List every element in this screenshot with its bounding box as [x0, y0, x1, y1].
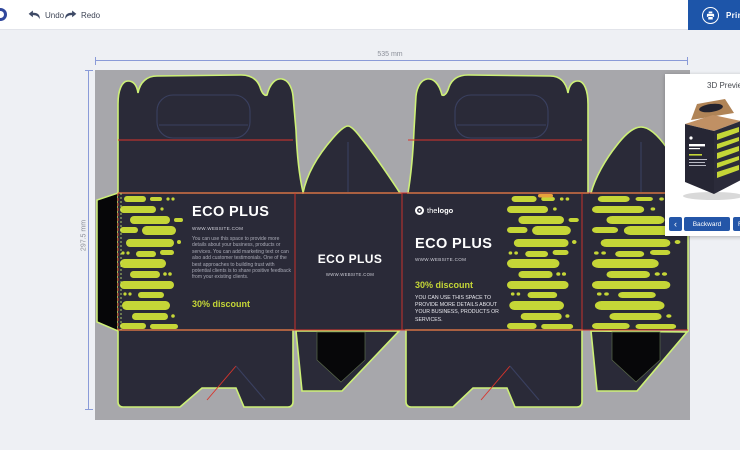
bottom-flap-front [118, 330, 293, 407]
back-icon[interactable] [0, 8, 7, 21]
undo-icon [28, 10, 41, 20]
height-dimension-line [88, 70, 89, 410]
width-dimension-line [95, 60, 688, 61]
front-panel-website[interactable]: WWW.WEBSITE.COM [192, 226, 243, 231]
back-panel-discount[interactable]: 30% discount [415, 280, 473, 290]
width-dimension-label: 535 mm [350, 51, 430, 58]
logo-circle-icon [415, 206, 424, 215]
print-button[interactable]: Print [688, 0, 740, 30]
box-3d-preview[interactable] [677, 96, 740, 209]
back-panel-title[interactable]: ECO PLUS [415, 236, 492, 252]
side-panel-text[interactable]: ECO PLUS WWW.WEBSITE.COM [302, 252, 398, 277]
top-toolbar: Undo Redo [0, 0, 740, 30]
height-dimension-label: 297.5 mm [81, 206, 88, 266]
preview-title: 3D Preview [665, 74, 740, 90]
back-panel-website[interactable]: WWW.WEBSITE.COM [415, 257, 466, 262]
front-panel-title[interactable]: ECO PLUS [192, 204, 269, 220]
backward-button[interactable]: Backward [684, 217, 730, 231]
forward-button[interactable]: Forward [733, 217, 740, 231]
back-panel-body-text[interactable]: YOU CAN USE THIS SPACE TO PROVIDE MORE D… [415, 295, 513, 324]
printer-icon [702, 7, 719, 24]
redo-label: Redo [81, 11, 100, 20]
back-panel-logo[interactable]: thelogo [415, 206, 453, 215]
top-gusset-1 [303, 126, 400, 193]
front-panel-discount[interactable]: 30% discount [192, 299, 250, 309]
logo-prefix: the [427, 206, 437, 215]
top-flap-back [408, 75, 588, 193]
logo-suffix: logo [437, 206, 453, 215]
bottom-flap-back [406, 330, 582, 407]
orange-dash [538, 194, 553, 198]
print-label: Print [726, 11, 740, 20]
front-panel-body-text[interactable]: You can use this space to provide more d… [192, 236, 292, 281]
undo-button[interactable]: Undo [28, 0, 64, 30]
design-canvas[interactable] [95, 70, 690, 420]
preview-panel: 3D Preview [665, 74, 740, 236]
redo-icon [64, 10, 77, 20]
dieline-drawing[interactable] [95, 70, 690, 420]
redo-button[interactable]: Redo [64, 0, 100, 30]
glue-tab [97, 193, 118, 331]
side-panel-website[interactable]: WWW.WEBSITE.COM [302, 272, 398, 277]
top-flap-front [118, 75, 303, 193]
undo-label: Undo [45, 11, 64, 20]
side-panel-title[interactable]: ECO PLUS [302, 252, 398, 266]
preview-prev-button[interactable]: ‹ [669, 217, 682, 231]
